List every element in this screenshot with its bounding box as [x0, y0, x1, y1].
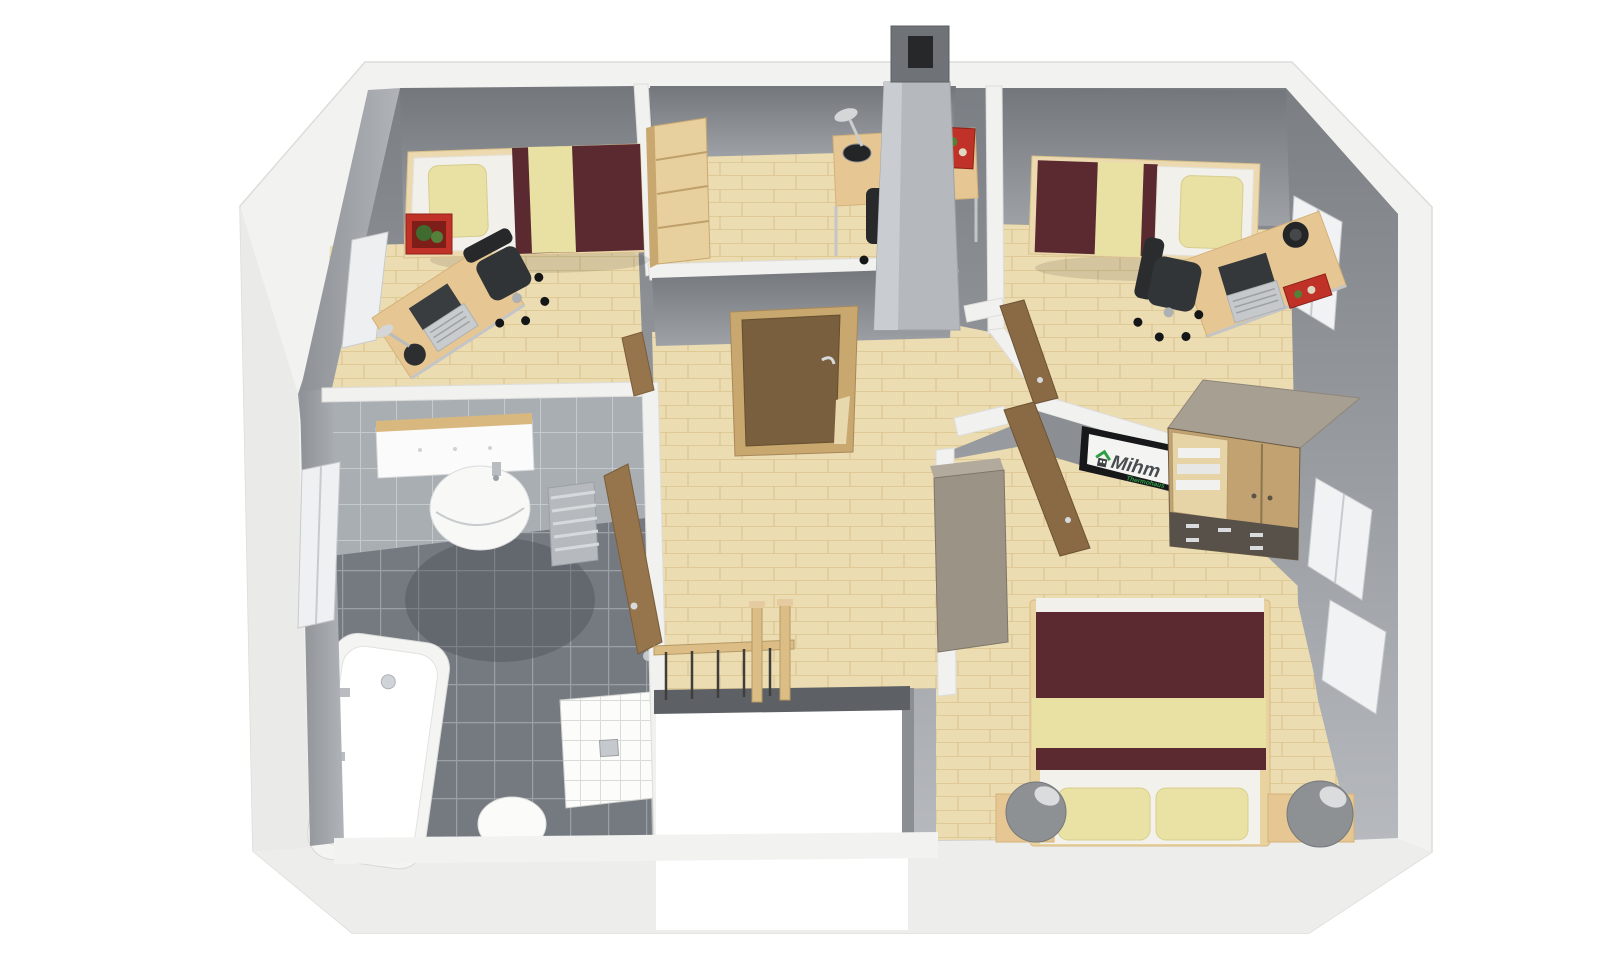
floorplan-stage: Mihm Thermohaus — [0, 0, 1611, 957]
cabinet-front — [934, 470, 1008, 652]
washbasin — [430, 466, 530, 550]
faucet-icon — [492, 462, 501, 476]
yellow-throw — [528, 146, 576, 253]
mirror-light-icon — [488, 446, 492, 450]
mirror-light-icon — [453, 447, 457, 451]
desk-grommet-icon — [843, 144, 871, 162]
drawer-handle-icon — [1250, 546, 1263, 550]
tall-cabinet — [930, 458, 1008, 652]
newel-post — [752, 606, 762, 702]
door-panel — [742, 315, 840, 446]
maroon-band — [1036, 748, 1266, 770]
yellow-pillow — [1156, 788, 1248, 840]
yellow-throw — [1095, 161, 1144, 257]
logo-house-window-icon — [1103, 461, 1106, 464]
drawer-handle-icon — [1250, 533, 1263, 537]
floorplan-render: Mihm Thermohaus — [0, 0, 1611, 957]
chair-seat — [1146, 255, 1203, 314]
chimney-flue-opening — [908, 36, 933, 68]
door-handle-icon — [1037, 377, 1043, 383]
yellow-band — [1032, 698, 1266, 750]
wardrobe-open-shelves — [1172, 432, 1228, 520]
yellow-pillow — [1179, 175, 1243, 249]
folded-clothes — [1176, 480, 1220, 490]
mirror-light-icon — [418, 448, 422, 452]
folded-clothes — [1177, 464, 1220, 474]
stairwell-right-edge — [902, 688, 914, 846]
drawer-handle-icon — [1186, 538, 1199, 542]
wardrobe-handle-icon — [1252, 494, 1257, 499]
door-handle-icon — [631, 603, 638, 610]
office-door — [730, 306, 858, 456]
yellow-pillow — [1058, 788, 1150, 840]
plant-icon — [431, 231, 443, 243]
bedside-lamp-left — [1006, 782, 1066, 842]
faucet-icon — [493, 475, 499, 481]
shower-drain-icon — [599, 739, 618, 756]
lamp-shade — [1287, 781, 1353, 847]
newel-post-cap — [777, 599, 793, 606]
logo-house-window-icon — [1100, 460, 1103, 463]
bedside-lamp-right — [1287, 781, 1353, 847]
drawer-handle-icon — [1218, 528, 1231, 532]
door-handle-icon — [1065, 517, 1071, 523]
wall-bedroom-right-west — [986, 86, 1004, 334]
drawer-handle-icon — [1186, 524, 1199, 528]
chair-caster — [860, 256, 869, 265]
maroon-blanket — [1036, 612, 1264, 698]
plant-icon — [416, 225, 432, 241]
wardrobe-handle-icon — [1268, 496, 1273, 501]
newel-post-cap — [749, 601, 765, 608]
newel-post — [780, 604, 790, 700]
red-planter-box — [406, 214, 452, 254]
folded-clothes — [1178, 448, 1220, 458]
stairwell-void — [656, 688, 908, 930]
